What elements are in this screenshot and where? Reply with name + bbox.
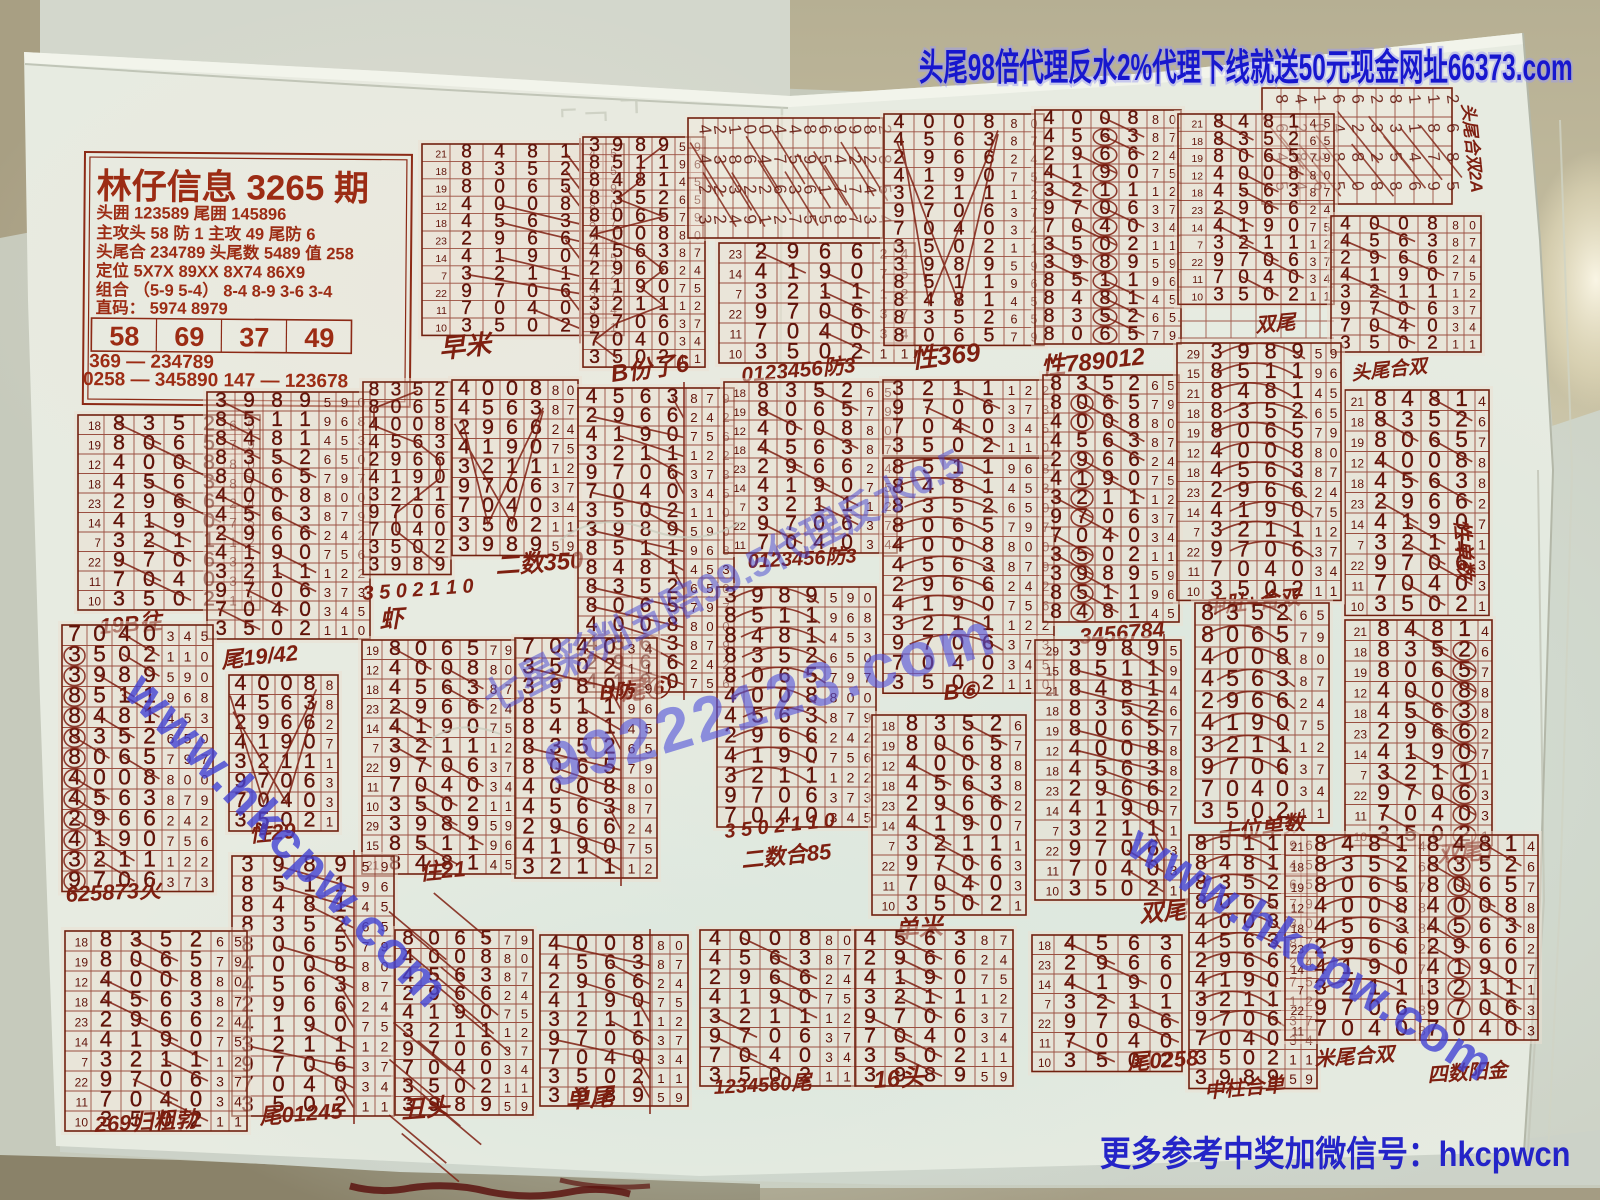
svg-text:9: 9 [1170,663,1178,679]
svg-text:590: 590 [830,590,872,606]
svg-text:18: 18 [366,684,379,697]
svg-text:直码： 5974 8979: 直码： 5974 8979 [96,297,228,318]
svg-text:14: 14 [733,483,746,495]
svg-text:18: 18 [733,388,746,400]
svg-text:756: 756 [167,833,209,849]
svg-text:453: 453 [324,433,365,448]
svg-text:7: 7 [1170,723,1178,739]
svg-text:7: 7 [1044,999,1051,1012]
svg-text:625873火: 625873火 [65,877,165,907]
svg-text:2: 2 [1478,496,1486,512]
svg-text:18: 18 [882,720,896,734]
svg-text:6: 6 [1527,859,1535,875]
svg-text:242: 242 [324,528,365,543]
svg-text:14: 14 [366,723,380,736]
svg-text:⌐﹁ ㄱ: ⌐﹁ ㄱ [559,91,644,127]
svg-text:21: 21 [435,150,447,161]
svg-text:8: 8 [1481,685,1489,701]
svg-text:1: 1 [1527,982,1535,998]
svg-text:10: 10 [1187,585,1201,599]
svg-text:18: 18 [1191,189,1203,200]
svg-text:10: 10 [882,900,896,914]
svg-text:3: 3 [1478,557,1486,573]
svg-text:7: 7 [326,737,334,752]
svg-text:7: 7 [740,502,746,514]
svg-text:定位 5X7X 89XX 8X74 86X9: 定位 5X7X 89XX 8X74 86X9 [96,260,305,282]
svg-text:10: 10 [729,348,743,362]
svg-text:18: 18 [75,996,89,1010]
svg-text:11: 11 [76,1096,89,1110]
svg-text:373: 373 [324,585,365,600]
svg-text:7: 7 [1014,738,1022,754]
svg-text:组合 （5-9 5-4） 8-4 8-9 3-6 3-: 组合 （5-9 5-4） 8-4 8-9 3-6 3-4 [96,279,334,301]
svg-text:968: 968 [324,414,365,429]
svg-text:18: 18 [882,780,896,794]
svg-text:21: 21 [1291,840,1305,854]
svg-text:7: 7 [1478,516,1486,532]
svg-text:21: 21 [1351,395,1365,409]
svg-text:23: 23 [729,248,743,262]
svg-text:18: 18 [1046,705,1060,719]
svg-text:23: 23 [88,498,101,511]
svg-text:756: 756 [830,750,872,766]
svg-text:3: 3 [1527,1002,1535,1018]
svg-text:6: 6 [1170,703,1178,719]
svg-text:10: 10 [1038,1057,1052,1070]
svg-text:21: 21 [1354,625,1368,639]
svg-text:19: 19 [366,645,379,658]
svg-text:15: 15 [1046,665,1060,679]
svg-text:373: 373 [830,790,872,806]
svg-text:23: 23 [882,800,896,814]
svg-text:345: 345 [830,810,872,826]
svg-text:3: 3 [1014,878,1022,894]
svg-text:18: 18 [1351,477,1365,491]
svg-text:10: 10 [88,596,102,609]
svg-text:8: 8 [326,678,334,693]
svg-text:8: 8 [326,698,334,713]
svg-text:11: 11 [1292,1025,1305,1039]
svg-text:14: 14 [729,268,743,282]
svg-text:1: 1 [326,815,334,830]
svg-text:19: 19 [1351,436,1365,450]
svg-text:7: 7 [1297,984,1304,998]
svg-text:756: 756 [324,547,365,562]
svg-text:110: 110 [324,623,365,638]
svg-text:尾0258: 尾0258 [1126,1045,1200,1075]
svg-text:22: 22 [366,762,379,775]
svg-text:19: 19 [75,956,89,970]
svg-text:7: 7 [1170,803,1178,819]
svg-text:19: 19 [882,740,896,754]
svg-text:800: 800 [324,490,365,505]
svg-text:8: 8 [1478,455,1486,471]
svg-text:2: 2 [1170,783,1178,799]
svg-text:22: 22 [1191,258,1203,269]
svg-text:7: 7 [1481,664,1489,680]
svg-text:8: 8 [1014,758,1022,774]
svg-text:1: 1 [1481,767,1489,783]
svg-text:7: 7 [1357,539,1364,553]
svg-text:968: 968 [830,610,872,626]
svg-text:6: 6 [1481,644,1489,660]
svg-text:11: 11 [1047,865,1060,879]
svg-text:18: 18 [1354,707,1368,721]
svg-text:14: 14 [435,254,447,265]
svg-text:14: 14 [1191,223,1203,234]
svg-text:14: 14 [75,1036,89,1050]
svg-text:58: 58 [109,321,139,351]
svg-text:3: 3 [1481,808,1489,824]
svg-text:7: 7 [1014,818,1022,834]
svg-text:12: 12 [733,426,746,438]
svg-text:头尾合 234789 头尾数 5489 值 258: 头尾合 234789 头尾数 5489 值 258 [96,241,354,263]
svg-text:7: 7 [81,1056,88,1070]
svg-text:12: 12 [1351,457,1365,471]
svg-text:7: 7 [735,288,742,302]
svg-text:23: 23 [1187,486,1201,500]
svg-text:12: 12 [1354,687,1368,701]
svg-text:22: 22 [88,557,101,570]
svg-text:8: 8 [1170,763,1178,779]
svg-text:2: 2 [326,717,334,732]
svg-text:14: 14 [882,820,896,834]
svg-text:14: 14 [1187,506,1201,520]
svg-text:双尾: 双尾 [1254,311,1300,337]
svg-text:23: 23 [1354,728,1368,742]
svg-text:10: 10 [1046,885,1060,899]
svg-text:22: 22 [1354,789,1368,803]
svg-text:B防: B防 [598,679,637,705]
svg-text:345: 345 [167,628,209,644]
svg-text:11: 11 [1039,1038,1051,1051]
svg-text:1: 1 [1478,537,1486,553]
svg-text:122: 122 [167,854,209,870]
svg-text:主攻头 58 防 1 主攻 49 尾防 6: 主攻头 58 防 1 主攻 49 尾防 6 [96,222,315,244]
svg-text:2: 2 [1527,941,1535,957]
svg-text:18: 18 [1291,861,1305,875]
svg-text:7: 7 [1527,879,1535,895]
svg-text:6: 6 [1014,718,1022,734]
svg-text:头囲 123589 尾囲 145896: 头囲 123589 尾囲 145896 [96,203,286,224]
svg-text:7: 7 [1478,434,1486,450]
svg-text:11: 11 [1352,580,1365,594]
svg-text:879: 879 [324,509,365,524]
svg-text:7: 7 [372,743,379,756]
svg-text:19: 19 [1191,154,1203,165]
svg-text:10: 10 [1351,600,1365,614]
svg-text:7: 7 [1193,526,1200,540]
svg-text:8: 8 [1170,743,1178,759]
svg-text:22: 22 [1046,845,1060,859]
svg-text:22: 22 [882,860,896,874]
svg-text:12: 12 [88,459,101,472]
svg-text:12: 12 [882,760,896,774]
svg-text:22: 22 [1038,1018,1051,1031]
svg-text:19: 19 [1187,427,1201,441]
svg-text:头尾98倍代理反水2%代理下线就送50元现金网址66373.: 头尾98倍代理反水2%代理下线就送50元现金网址66373.com [919,46,1573,88]
svg-text:22: 22 [729,308,743,322]
svg-text:29: 29 [1187,347,1201,361]
svg-text:8: 8 [1527,920,1535,936]
svg-text:1: 1 [1014,838,1022,854]
svg-text:18: 18 [435,167,447,178]
svg-text:16头: 16头 [873,1063,927,1094]
svg-text:7: 7 [441,271,447,282]
svg-text:242: 242 [167,813,209,829]
svg-text:18: 18 [1354,646,1368,660]
svg-text:3: 3 [1014,858,1022,874]
svg-text:7: 7 [1197,241,1203,252]
svg-text:更多参考中奖加微信号：hkcpwcn: 更多参考中奖加微信号：hkcpwcn [1100,1134,1570,1173]
svg-text:3: 3 [1527,1023,1535,1039]
svg-text:3: 3 [1478,578,1486,594]
svg-text:14: 14 [1354,748,1368,762]
svg-text:早米: 早米 [437,328,495,364]
svg-text:3: 3 [1481,787,1489,803]
svg-text:21: 21 [1187,387,1201,401]
svg-text:21: 21 [1191,120,1203,131]
svg-text:11: 11 [883,880,896,894]
svg-text:林仔信息 3265 期: 林仔信息 3265 期 [97,166,370,208]
svg-text:15: 15 [366,840,380,853]
svg-text:18: 18 [1191,137,1203,148]
svg-text:18: 18 [88,420,101,433]
svg-text:122: 122 [830,770,872,786]
svg-text:23: 23 [733,464,746,476]
svg-text:7: 7 [1052,825,1059,839]
svg-text:1: 1 [326,756,334,771]
svg-text:4: 4 [1478,393,1486,409]
svg-text:14: 14 [1351,518,1365,532]
svg-text:7: 7 [1360,769,1367,783]
svg-text:11: 11 [1355,810,1368,824]
svg-text:18: 18 [88,479,101,492]
svg-text:23: 23 [75,1016,89,1030]
svg-text:29: 29 [366,821,379,834]
svg-text:1: 1 [1478,598,1486,614]
svg-text:8: 8 [1527,900,1535,916]
svg-text:22: 22 [1187,545,1200,559]
svg-text:18: 18 [1187,407,1201,421]
svg-text:18: 18 [733,445,746,457]
svg-text:242: 242 [830,730,872,746]
svg-text:19: 19 [435,184,447,195]
svg-text:住21: 住21 [418,856,466,885]
svg-text:12: 12 [435,202,447,213]
svg-text:650: 650 [324,452,365,467]
svg-text:797: 797 [324,471,365,486]
svg-text:19: 19 [88,440,101,453]
svg-text:18: 18 [1038,940,1051,953]
svg-text:23: 23 [1191,206,1203,217]
svg-text:18: 18 [435,219,447,230]
svg-text:23: 23 [366,704,379,717]
svg-text:37: 37 [239,322,269,352]
svg-text:4: 4 [1527,838,1535,854]
svg-text:23: 23 [1046,785,1060,799]
svg-text:22: 22 [75,1076,89,1090]
svg-text:12: 12 [1046,745,1060,759]
svg-text:性单数: 性单数 [1450,519,1477,583]
svg-text:3: 3 [326,795,334,810]
svg-text:单尾: 单尾 [565,1083,618,1113]
svg-text:15: 15 [1187,367,1201,381]
svg-text:11: 11 [89,576,101,589]
svg-text:110: 110 [167,649,209,665]
svg-text:7: 7 [1481,746,1489,762]
svg-text:19: 19 [1291,881,1305,895]
svg-text:18: 18 [1046,765,1060,779]
svg-text:14: 14 [1046,805,1060,819]
svg-text:22: 22 [1351,559,1365,573]
svg-text:14: 14 [88,518,102,531]
svg-text:345: 345 [324,604,365,619]
svg-text:11: 11 [730,328,743,342]
svg-text:8: 8 [1481,705,1489,721]
svg-text:11: 11 [1192,275,1203,286]
svg-text:12: 12 [1187,446,1200,460]
svg-text:18: 18 [1187,466,1201,480]
svg-text:373: 373 [167,874,209,890]
svg-text:11: 11 [436,306,447,317]
svg-text:12: 12 [1191,171,1203,182]
svg-text:11: 11 [1188,565,1201,579]
svg-text:5: 5 [1170,643,1178,659]
svg-text:12: 12 [75,976,89,990]
svg-text:23: 23 [1351,498,1365,512]
svg-text:19: 19 [1354,666,1368,680]
svg-text:4: 4 [1481,623,1489,639]
svg-text:23: 23 [435,237,447,248]
svg-text:8: 8 [1478,475,1486,491]
svg-text:69: 69 [174,322,204,352]
svg-text:2: 2 [1014,798,1022,814]
svg-text:6: 6 [1478,414,1486,430]
svg-text:丑头: 丑头 [401,1094,453,1124]
svg-text:7: 7 [888,840,895,854]
svg-text:590: 590 [324,395,365,410]
svg-text:7: 7 [94,537,101,550]
svg-text:3: 3 [326,776,334,791]
svg-text:8: 8 [1014,778,1022,794]
svg-text:19: 19 [733,407,746,419]
svg-text:11: 11 [367,782,379,795]
svg-text:29: 29 [1046,645,1060,659]
svg-text:2: 2 [1481,726,1489,742]
svg-text:19: 19 [1046,725,1060,739]
svg-text:10: 10 [1191,293,1203,304]
svg-text:122: 122 [324,566,365,581]
svg-text:23: 23 [1038,960,1051,973]
svg-text:18: 18 [75,936,89,950]
svg-text:22: 22 [435,289,447,300]
svg-text:4: 4 [1170,683,1178,699]
svg-text:10: 10 [75,1116,89,1130]
svg-text:22: 22 [1291,1004,1305,1018]
svg-text:7: 7 [1527,961,1535,977]
svg-text:12: 12 [366,665,379,678]
svg-text:49: 49 [304,323,334,353]
svg-text:21: 21 [1046,685,1060,699]
svg-text:14: 14 [1038,979,1052,992]
svg-text:1: 1 [1014,898,1022,914]
svg-text:18: 18 [1351,416,1365,430]
svg-text:10: 10 [366,801,380,814]
